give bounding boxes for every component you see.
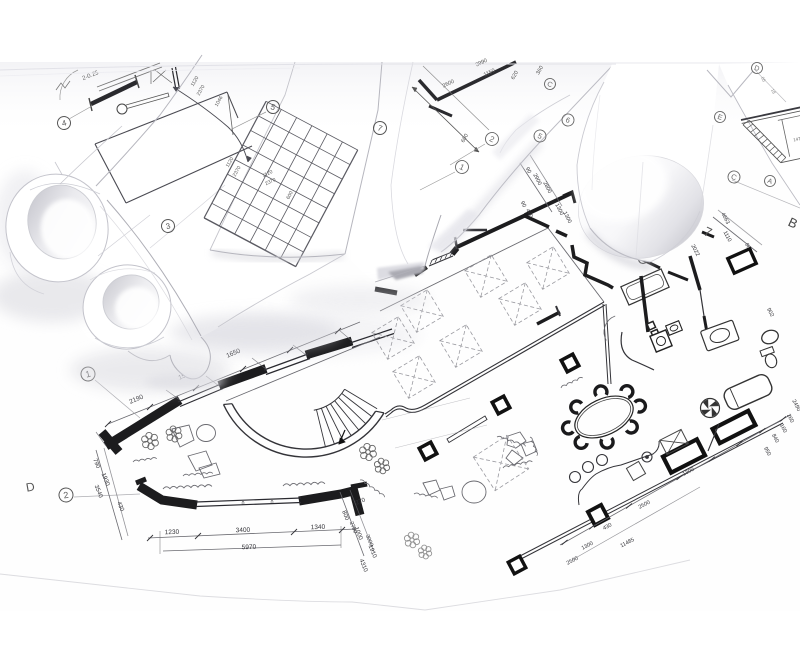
svg-text:0: 0 [242,501,245,507]
svg-text:1340: 1340 [311,524,326,532]
svg-text:3400: 3400 [236,527,251,535]
svg-text:1230: 1230 [165,529,180,537]
svg-text:5970: 5970 [242,544,257,552]
svg-text:0: 0 [271,500,274,506]
